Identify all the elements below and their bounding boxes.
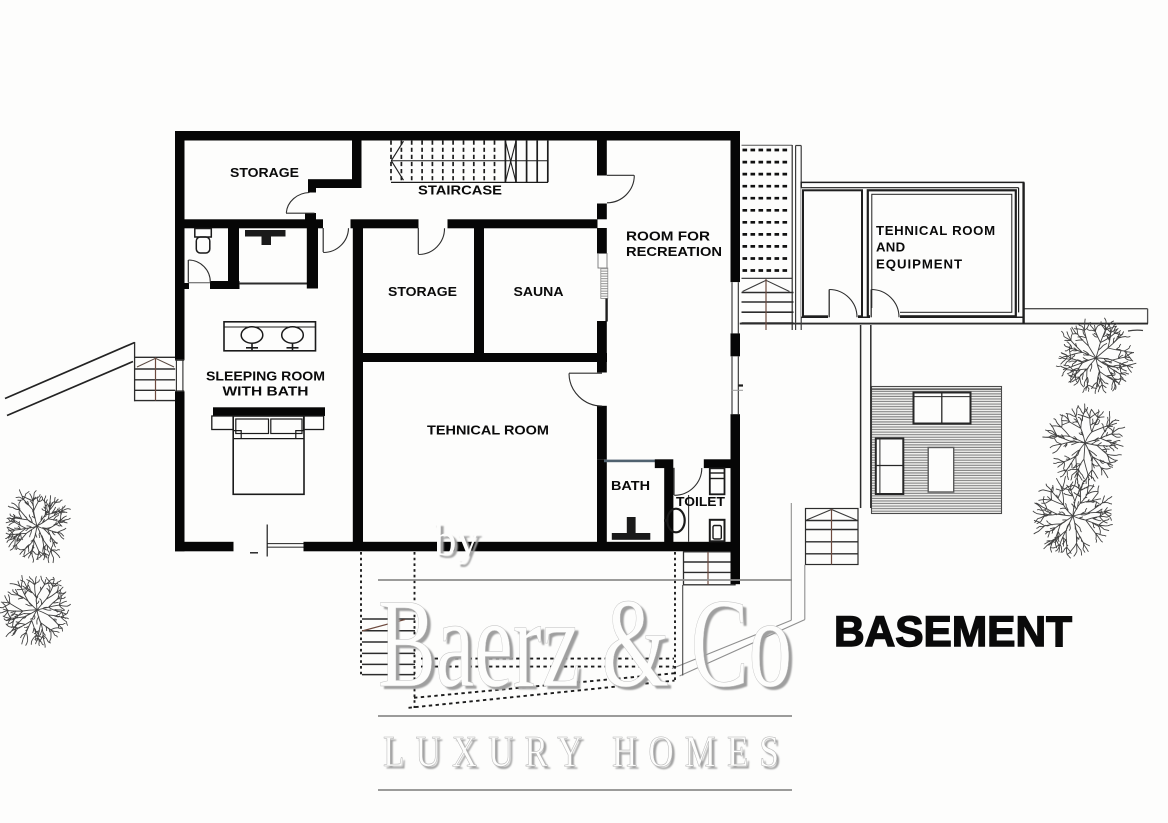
svg-text:STORAGE: STORAGE: [230, 165, 299, 180]
svg-text:TEHNICAL ROOM: TEHNICAL ROOM: [427, 423, 549, 438]
svg-text:STORAGE: STORAGE: [388, 284, 457, 299]
svg-text:AND: AND: [876, 240, 906, 255]
svg-text:SLEEPING ROOM: SLEEPING ROOM: [206, 369, 325, 384]
svg-text:ROOM FOR: ROOM FOR: [626, 229, 711, 244]
svg-text:WITH BATH: WITH BATH: [223, 384, 309, 399]
svg-text:EQUIPMENT: EQUIPMENT: [876, 256, 963, 271]
svg-text:TOILET: TOILET: [676, 494, 725, 509]
svg-text:by: by: [434, 515, 480, 565]
svg-text:STAIRCASE: STAIRCASE: [418, 182, 502, 197]
svg-text:RECREATION: RECREATION: [626, 244, 722, 259]
svg-text:TEHNICAL ROOM: TEHNICAL ROOM: [876, 223, 996, 238]
svg-text:BATH: BATH: [611, 478, 650, 493]
svg-text:BASEMENT: BASEMENT: [834, 609, 1072, 656]
svg-text:Baerz & Co: Baerz & Co: [378, 574, 792, 714]
svg-text:LUXURY HOMES: LUXURY HOMES: [383, 727, 790, 776]
svg-text:SAUNA: SAUNA: [514, 284, 565, 299]
